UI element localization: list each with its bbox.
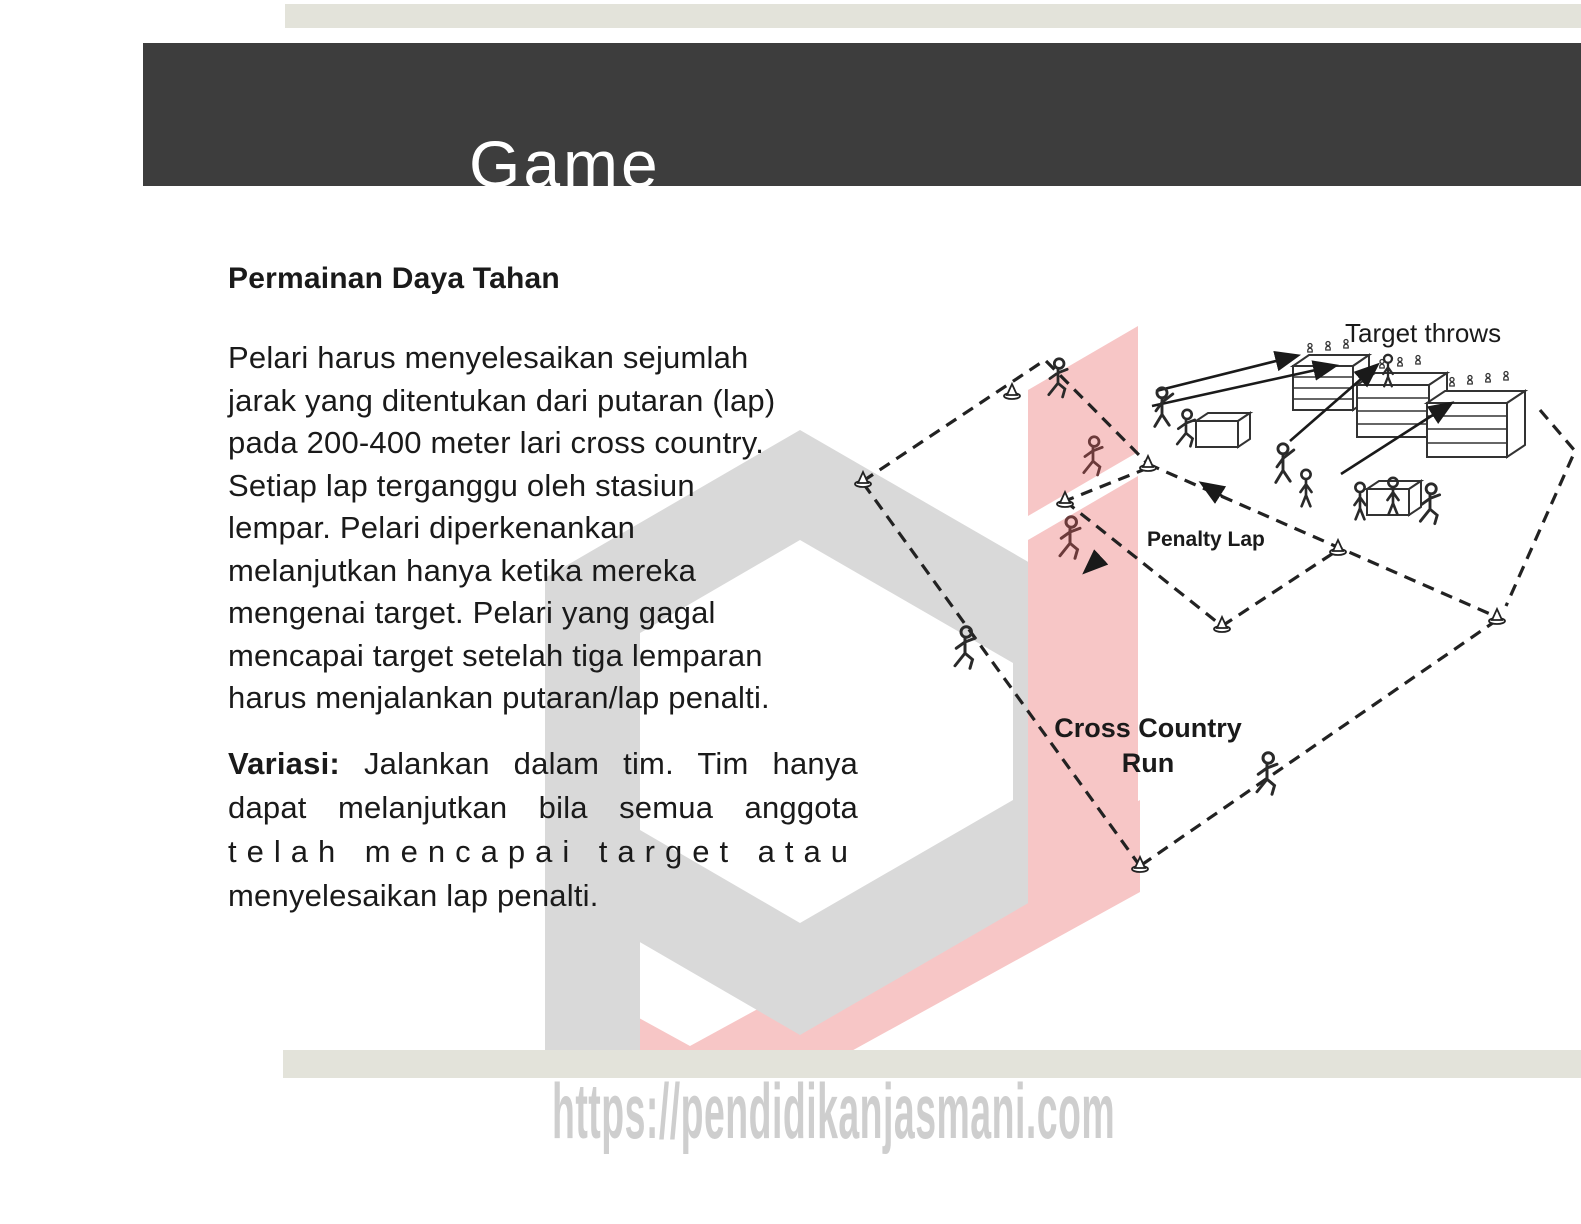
runner-figure xyxy=(1177,410,1195,447)
runner-figure xyxy=(1420,484,1439,524)
pin-target-icon xyxy=(1308,344,1313,353)
pin-target-icon xyxy=(1468,376,1473,385)
standing-figure xyxy=(1355,483,1366,520)
outer-loop-left-bottom xyxy=(863,483,1140,866)
cone-icon xyxy=(1330,540,1346,555)
penalty-entry xyxy=(1065,468,1148,501)
equipment-box xyxy=(1196,413,1250,447)
penalty-lap-label: Penalty Lap xyxy=(1147,528,1265,551)
target-stations xyxy=(1196,340,1525,516)
thrower-figure xyxy=(1276,444,1294,483)
pin-target-icon xyxy=(1504,372,1509,381)
pin-target-icon xyxy=(1326,342,1331,351)
cross-country-diagram: Target throws Penalty Lap Cross Country … xyxy=(0,0,1581,1224)
penalty-right-edge xyxy=(1222,550,1338,626)
pin-target-icon xyxy=(1416,356,1421,365)
penalty-runner-figure xyxy=(1060,517,1080,559)
cone-icon xyxy=(855,472,871,487)
thrower-figure xyxy=(1155,388,1173,427)
watermark-url: https://pendidikanjasmani.com xyxy=(552,1066,1115,1157)
runner-figure xyxy=(955,627,975,669)
penalty-left-edge xyxy=(1065,501,1222,626)
course-cones xyxy=(855,384,1505,872)
cross-country-label-line1: Cross Country xyxy=(1054,713,1242,743)
cone-icon xyxy=(1140,456,1156,471)
outer-loop-left-top xyxy=(863,360,1148,481)
slide-page: Game Permainan Daya Tahan Pelari harus m… xyxy=(0,0,1581,1224)
pin-target-icon xyxy=(1398,358,1403,367)
cross-country-label-line2: Run xyxy=(1122,748,1174,778)
outer-loop-right-bottom xyxy=(1140,620,1497,866)
pin-target-icon xyxy=(1486,374,1491,383)
cone-icon xyxy=(1489,609,1505,624)
pin-target-icon xyxy=(1450,378,1455,387)
cone-icon xyxy=(1214,617,1230,632)
runner-figure xyxy=(1084,437,1102,475)
throw-arrow xyxy=(1156,356,1296,391)
direction-arrow xyxy=(1086,558,1100,571)
standing-figure xyxy=(1301,470,1312,507)
target-throws-label: Target throws xyxy=(1345,318,1501,348)
